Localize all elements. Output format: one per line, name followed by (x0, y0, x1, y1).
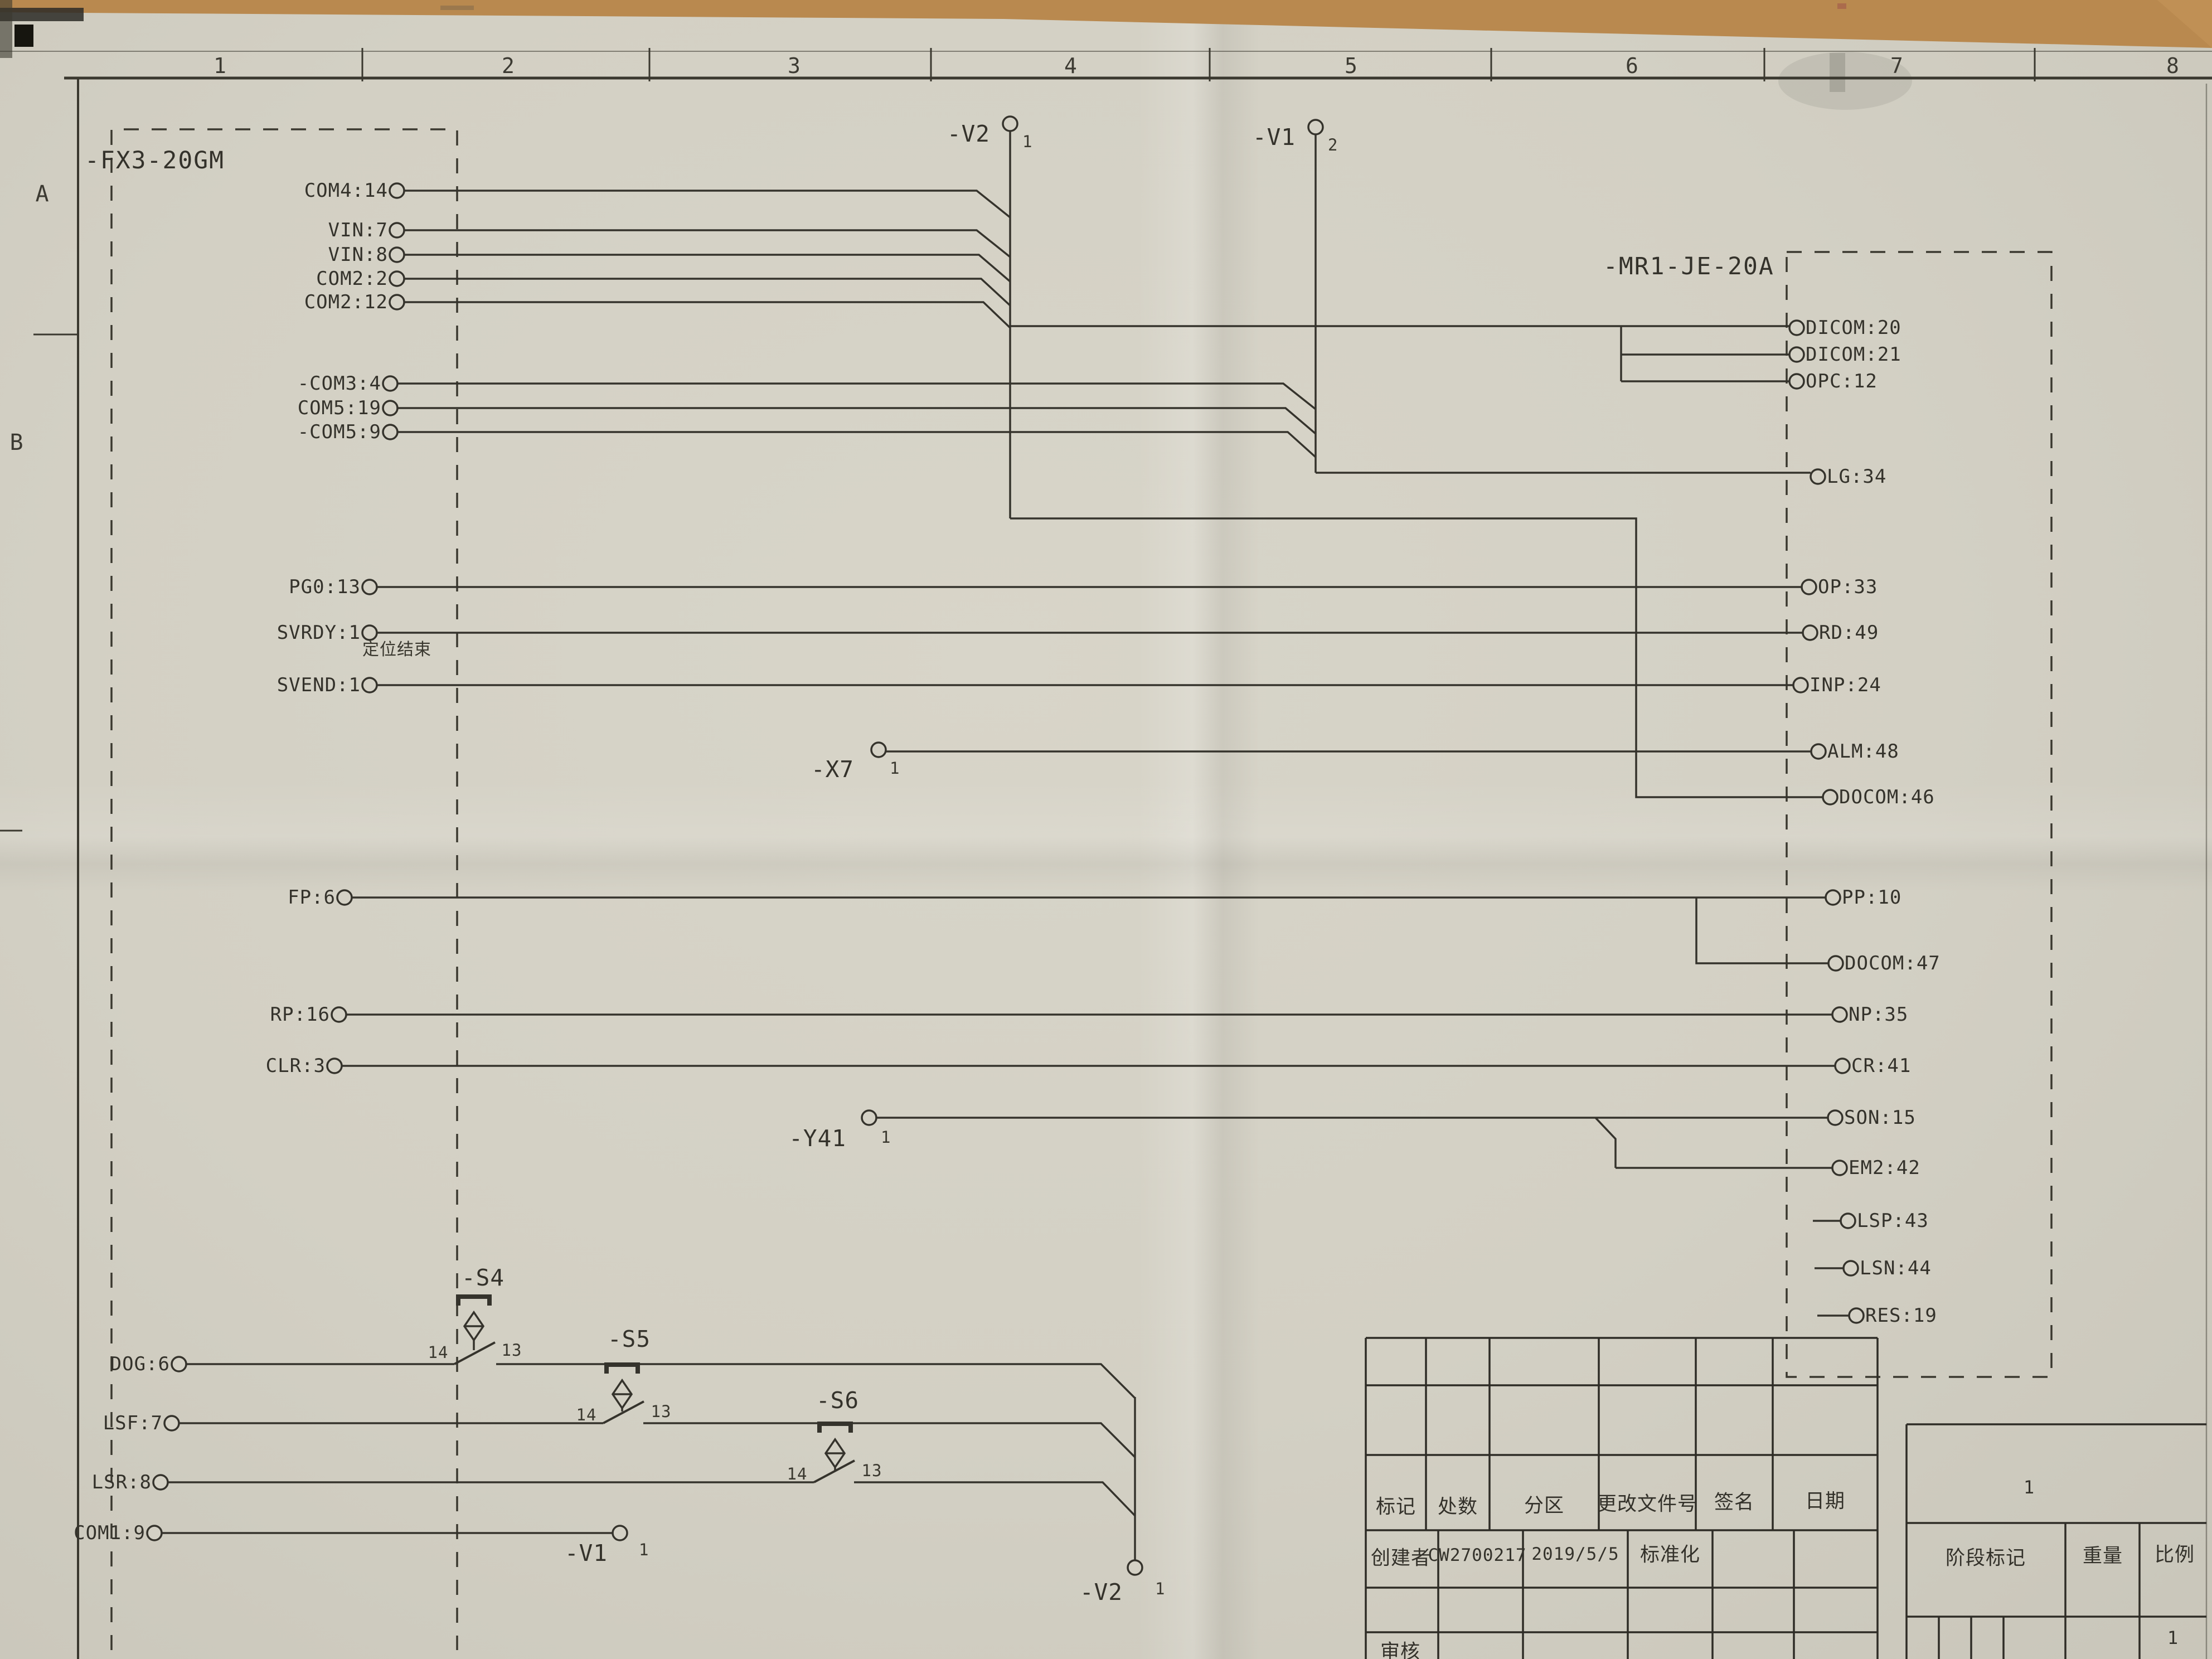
connector-v1-bottom-label: -V1 (565, 1540, 608, 1566)
titleblock-header-date: 日期 (1805, 1486, 1845, 1514)
fx3-dashed-box (111, 129, 457, 1650)
titleblock-creator-id: CW2700217 (1428, 1545, 1527, 1565)
switch-s5-pin-13: 13 (651, 1402, 672, 1421)
ruler-number-3: 3 (788, 54, 801, 78)
smudge-dark (1830, 53, 1845, 92)
binder-mark (0, 8, 84, 21)
mr1-dashed-box (1787, 252, 2051, 1377)
titleblock-audit-label: 审核 (1380, 1636, 1420, 1659)
terminal-label-cr-41: CR:41 (1851, 1055, 1911, 1077)
titleblock-header-zone: 分区 (1524, 1490, 1564, 1519)
connector-v2-top-label: -V2 (947, 120, 990, 147)
edge-shadow (0, 0, 12, 58)
ruler-number-1: 1 (214, 54, 227, 78)
terminal-label-svrdy-1: SVRDY:1 (277, 622, 361, 644)
terminal-label-alm-48: ALM:48 (1827, 740, 1899, 763)
switch-s4-symbol (454, 1297, 495, 1364)
terminal-label-docom-46: DOCOM:46 (1839, 786, 1935, 808)
terminal-label-res-19: RES:19 (1865, 1304, 1937, 1327)
titleblock-standardization-label: 标准化 (1640, 1539, 1700, 1568)
ruler-number-5: 5 (1345, 54, 1358, 78)
terminal-label-clr-3: CLR:3 (266, 1055, 326, 1077)
terminal-label-son-15: SON:15 (1844, 1107, 1916, 1129)
switch-s5-pin-14: 14 (576, 1405, 597, 1424)
connector-v1-bottom-pin: 1 (639, 1540, 649, 1559)
terminal-label-com1-9: COM1:9 (74, 1522, 145, 1544)
terminal-label-lsn-44: LSN:44 (1860, 1257, 1932, 1279)
connector-y41-pin: 1 (881, 1128, 891, 1147)
switch-s4-pin-14: 14 (428, 1343, 449, 1362)
terminal-label-com2-12: COM2:12 (304, 291, 388, 313)
black-clip-mark (14, 25, 33, 47)
connector-v1-top-pin: 2 (1328, 135, 1338, 154)
titleblock-weight-label: 重量 (2083, 1540, 2123, 1569)
red-speck (1837, 3, 1846, 9)
ruler-number-6: 6 (1626, 54, 1639, 78)
mr1-block-label: -MR1-JE-20A (1603, 253, 1774, 280)
row-letter-b: B (9, 430, 23, 455)
switch-s4-pin-13: 13 (502, 1341, 522, 1360)
terminal-label-lsp-43: LSP:43 (1857, 1210, 1929, 1232)
terminal-label-inp-24: INP:24 (1810, 674, 1881, 696)
wires (162, 132, 1849, 1560)
terminal-label-com5-9: -COM5:9 (298, 421, 381, 443)
switch-s6-symbol (814, 1424, 855, 1482)
terminal-label-svend-1: SVEND:1 (277, 674, 361, 696)
terminal-label-com3-4: -COM3:4 (298, 372, 381, 395)
connector-x7-label: -X7 (811, 756, 854, 783)
titleblock-header-mark: 标记 (1376, 1491, 1416, 1520)
terminal-label-rd-49: RD:49 (1819, 622, 1879, 644)
terminal-label-np-35: NP:35 (1849, 1003, 1908, 1026)
connector-v2-top-pin: 1 (1022, 132, 1032, 151)
titleblock-header-docno: 更改文件号 (1597, 1488, 1697, 1517)
switch-s6-pin-14: 14 (787, 1464, 808, 1483)
titleblock-scale-label: 比例 (2155, 1539, 2195, 1568)
terminal-label-dicom-21: DICOM:21 (1806, 343, 1901, 366)
titleblock-header-signature: 签名 (1714, 1487, 1754, 1515)
terminal-label-docom-47: DOCOM:47 (1845, 952, 1941, 974)
row-letter-a: A (35, 181, 49, 207)
ruler-number-7: 7 (1890, 54, 1904, 78)
limit-switches (454, 1297, 855, 1482)
svend-annotation: 定位结束 (362, 636, 431, 660)
ruler-number-4: 4 (1064, 54, 1078, 78)
connector-v2-bottom-pin: 1 (1155, 1579, 1165, 1598)
ruler-number-8: 8 (2166, 54, 2180, 78)
connector-y41-label: -Y41 (789, 1125, 846, 1152)
terminal-label-fp-6: FP:6 (288, 886, 336, 909)
terminal-label-com4-14: COM4:14 (304, 180, 388, 202)
titleblock-creator-label: 创建者 (1371, 1542, 1431, 1571)
terminal-label-com5-19: COM5:19 (298, 397, 381, 419)
device-boundaries (111, 129, 2051, 1650)
terminal-circles (147, 117, 1864, 1575)
titleblock-scale-value: 1 (2167, 1627, 2179, 1648)
ruler-number-2: 2 (502, 54, 515, 78)
terminal-label-lsr-8: LSR:8 (92, 1471, 152, 1493)
switch-s5-symbol (603, 1365, 644, 1423)
photo-of-wiring-diagram: 1 2 3 4 5 6 7 8 A B -FX3-20GM -MR1-JE-20… (0, 0, 2212, 1659)
connector-v2-bottom-label: -V2 (1080, 1579, 1123, 1605)
terminal-label-opc-12: OPC:12 (1806, 370, 1878, 392)
titleblock-date-value: 2019/5/5 (1531, 1544, 1619, 1564)
switch-s6-label: -S6 (816, 1387, 859, 1414)
terminal-label-vin-7: VIN:7 (328, 219, 388, 241)
terminal-label-pg0-13: PG0:13 (289, 576, 361, 598)
terminal-label-vin-8: VIN:8 (328, 244, 388, 266)
fx3-block-label: -FX3-20GM (85, 147, 225, 174)
switch-s5-label: -S5 (608, 1326, 651, 1352)
terminal-label-dicom-20: DICOM:20 (1806, 317, 1901, 339)
switch-s4-label: -S4 (462, 1264, 505, 1291)
terminal-label-lsf-7: LSF:7 (103, 1412, 163, 1434)
terminal-label-rp-16: RP:16 (270, 1003, 330, 1026)
titleblock-header-count: 处数 (1438, 1491, 1478, 1520)
terminal-label-pp-10: PP:10 (1842, 886, 1901, 909)
titleblock-sheet-number: 1 (2024, 1477, 2035, 1498)
switch-s6-pin-13: 13 (862, 1461, 882, 1480)
edge-smear (440, 6, 474, 10)
title-block-grid (1366, 1338, 2206, 1659)
connector-v1-top-label: -V1 (1253, 124, 1296, 151)
terminal-label-lg-34: LG:34 (1827, 465, 1886, 488)
terminal-label-em2-42: EM2:42 (1849, 1157, 1920, 1179)
connector-x7-pin: 1 (890, 759, 900, 778)
terminal-label-com2-2: COM2:2 (316, 268, 388, 290)
terminal-label-op-33: OP:33 (1818, 576, 1878, 598)
desk-background (0, 0, 2212, 48)
titleblock-stage-label: 阶段标记 (1946, 1542, 2026, 1571)
terminal-label-dog-6: DOG:6 (110, 1353, 170, 1375)
